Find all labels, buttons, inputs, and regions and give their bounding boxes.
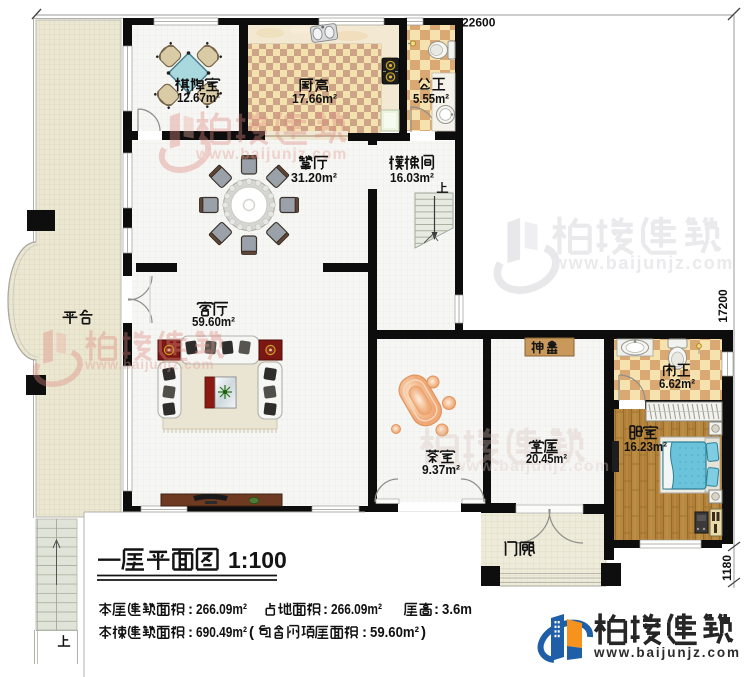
svg-text:www.baijunjz.com: www.baijunjz.com [593, 645, 741, 660]
svg-text:): ) [421, 624, 426, 641]
svg-text::: : [188, 624, 193, 641]
svg-text:9.37m²: 9.37m² [422, 463, 460, 477]
svg-text::: : [362, 624, 367, 641]
svg-text:1:100: 1:100 [228, 547, 287, 573]
svg-text:59.60m²: 59.60m² [370, 624, 419, 641]
svg-text::: : [434, 601, 439, 618]
svg-text:www.baijunjz.com: www.baijunjz.com [84, 357, 214, 372]
svg-text:17200: 17200 [716, 289, 730, 323]
svg-text:266.09m²: 266.09m² [196, 601, 247, 618]
svg-text:(: ( [249, 624, 254, 641]
svg-text:12.67m²: 12.67m² [177, 91, 220, 105]
svg-text:1180: 1180 [720, 555, 734, 581]
svg-text:www.baijunjz.com: www.baijunjz.com [552, 253, 734, 273]
svg-text::: : [323, 601, 328, 618]
svg-text:17.66m²: 17.66m² [292, 92, 337, 106]
svg-text:31.20m²: 31.20m² [291, 171, 337, 185]
svg-text:5.55m²: 5.55m² [413, 92, 449, 106]
svg-text:16.03m²: 16.03m² [390, 171, 434, 185]
svg-text:266.09m²: 266.09m² [331, 601, 382, 618]
svg-text:16.23m²: 16.23m² [624, 440, 667, 454]
svg-text:690.49m²: 690.49m² [196, 624, 247, 641]
svg-text:59.60m²: 59.60m² [192, 315, 235, 329]
svg-text:22600: 22600 [462, 16, 496, 30]
svg-text:3.6m: 3.6m [442, 601, 472, 618]
svg-text:20.45m²: 20.45m² [526, 452, 567, 466]
svg-text:6.62m²: 6.62m² [659, 377, 695, 391]
svg-text::: : [188, 601, 193, 618]
